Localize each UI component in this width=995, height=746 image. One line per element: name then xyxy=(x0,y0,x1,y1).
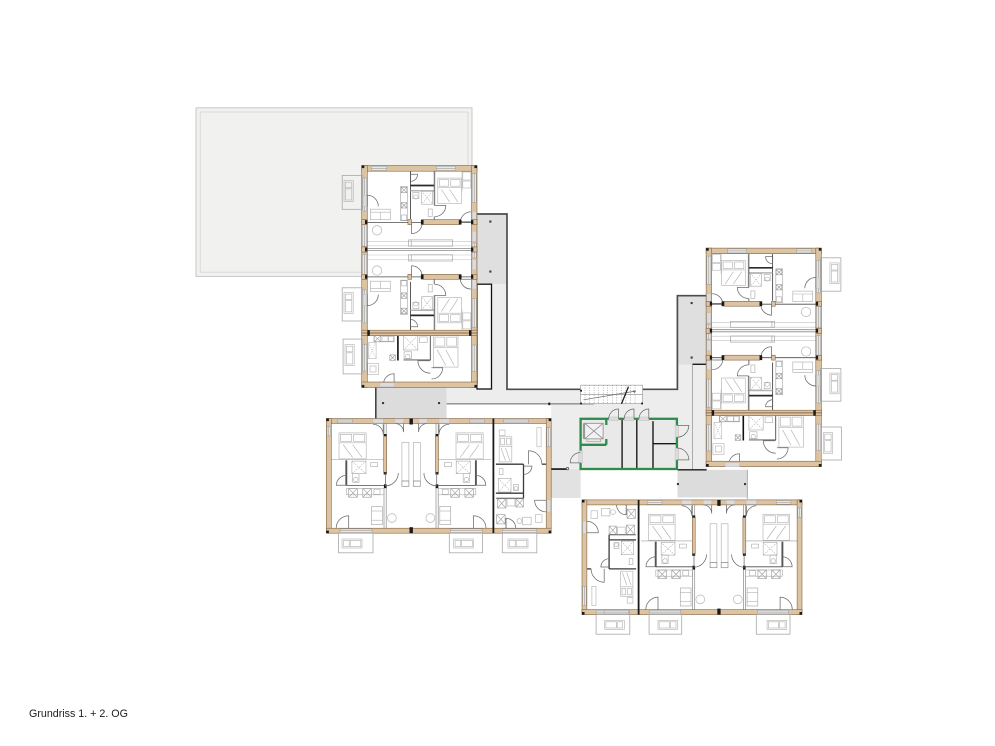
svg-text:Grundriss 1. + 2. OG: Grundriss 1. + 2. OG xyxy=(29,708,128,720)
